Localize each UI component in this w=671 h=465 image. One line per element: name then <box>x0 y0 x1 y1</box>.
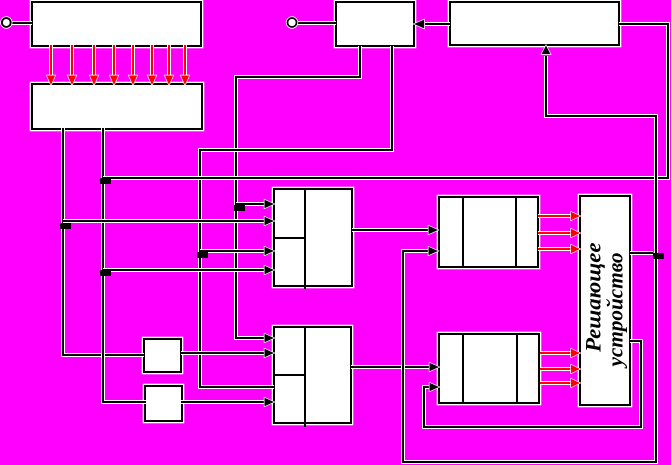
svg-text:устройство: устройство <box>603 253 628 370</box>
